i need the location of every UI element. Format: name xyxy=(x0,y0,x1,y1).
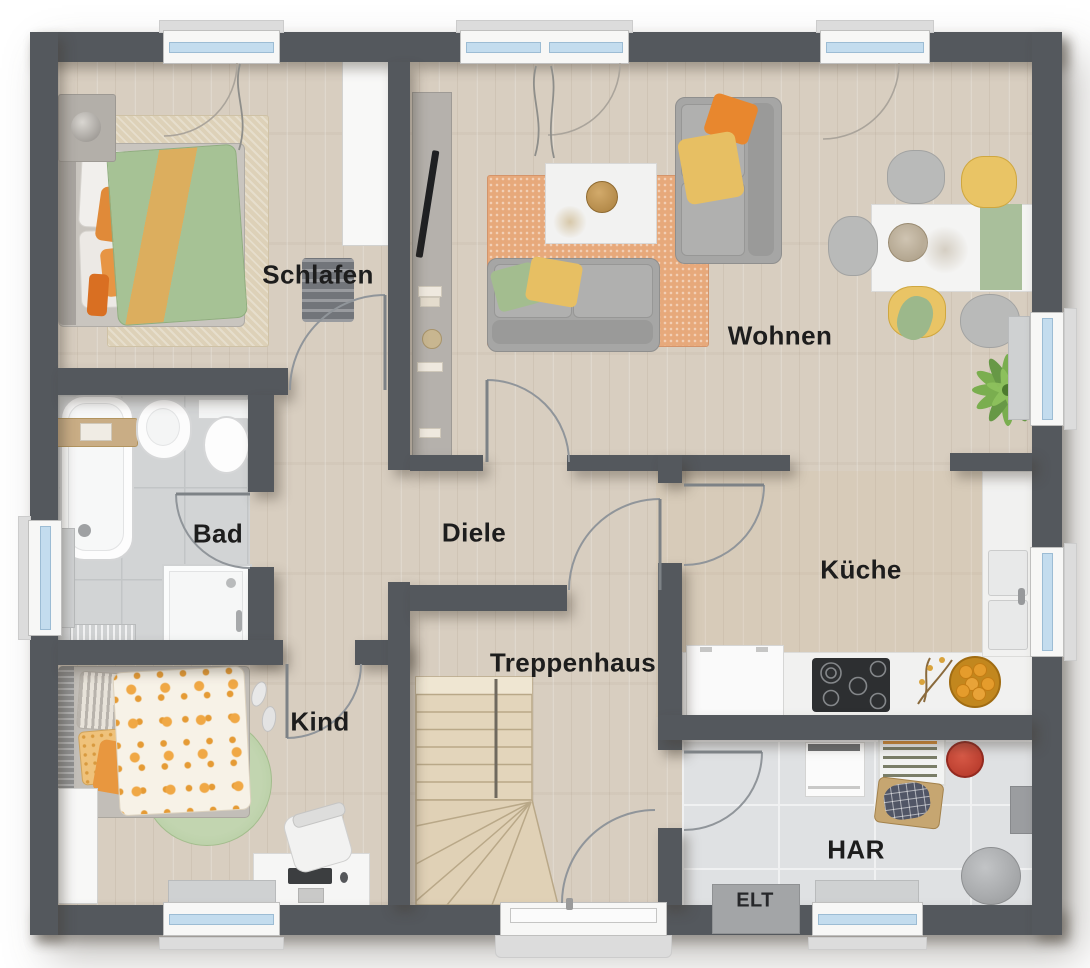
window-kueche xyxy=(1030,547,1064,657)
cooktop-burners xyxy=(821,662,886,709)
floor-plan: ELT xyxy=(0,0,1090,968)
fruit-bowl xyxy=(950,657,1000,707)
room-label-har: HAR xyxy=(827,835,885,866)
wall-exterior-right xyxy=(1032,32,1062,935)
radiator-wohnen xyxy=(1008,316,1030,420)
winder-staircase xyxy=(416,677,558,905)
room-label-schlafen: Schlafen xyxy=(262,260,374,291)
radiator-kind xyxy=(168,880,276,904)
twig-decor xyxy=(918,657,952,704)
window-sill xyxy=(808,937,927,950)
room-label-treppenhaus: Treppenhaus xyxy=(490,648,656,679)
wall-wohnen-kueche xyxy=(950,453,1032,471)
wall-har-west xyxy=(658,828,682,905)
window-schlafen xyxy=(163,30,280,64)
wall-bad-east-a xyxy=(248,395,274,492)
stairs-and-decor xyxy=(0,0,1090,968)
radiator-bad-window xyxy=(60,528,75,628)
wall-diele-treppenhaus xyxy=(410,585,567,611)
door-handle xyxy=(566,898,573,910)
window-sill xyxy=(159,937,284,950)
window-bad xyxy=(28,520,62,636)
wall-schlafen-south xyxy=(58,368,288,395)
window-sill xyxy=(1064,543,1077,661)
radiator-har xyxy=(815,880,919,904)
window-kind xyxy=(163,902,280,936)
wall-kueche-har xyxy=(658,715,1032,740)
wall-bad-kind xyxy=(58,640,283,665)
room-label-kind: Kind xyxy=(290,707,349,738)
window-wohnen-top xyxy=(820,30,930,64)
wall-schlafen-wohnen xyxy=(388,62,410,470)
room-label-bad: Bad xyxy=(193,519,243,550)
window-har xyxy=(812,902,923,936)
room-label-wohnen: Wohnen xyxy=(728,321,832,352)
wall-exterior-left xyxy=(30,32,58,935)
room-label-elt: ELT xyxy=(736,890,774,913)
room-label-kueche: Küche xyxy=(820,555,901,586)
window-wohnen-right xyxy=(1030,312,1064,426)
entrance-door-leaf xyxy=(510,908,657,923)
wall-diele-wohnen-a xyxy=(410,455,483,471)
entrance-step xyxy=(495,935,672,958)
wall-kueche-west-a xyxy=(658,455,682,483)
room-label-diele: Diele xyxy=(442,518,506,549)
window-wohnen-top-double xyxy=(460,30,629,64)
radiator-bad xyxy=(70,624,136,641)
window-sill xyxy=(1064,308,1077,430)
wall-kind-treppenhaus xyxy=(388,582,410,905)
